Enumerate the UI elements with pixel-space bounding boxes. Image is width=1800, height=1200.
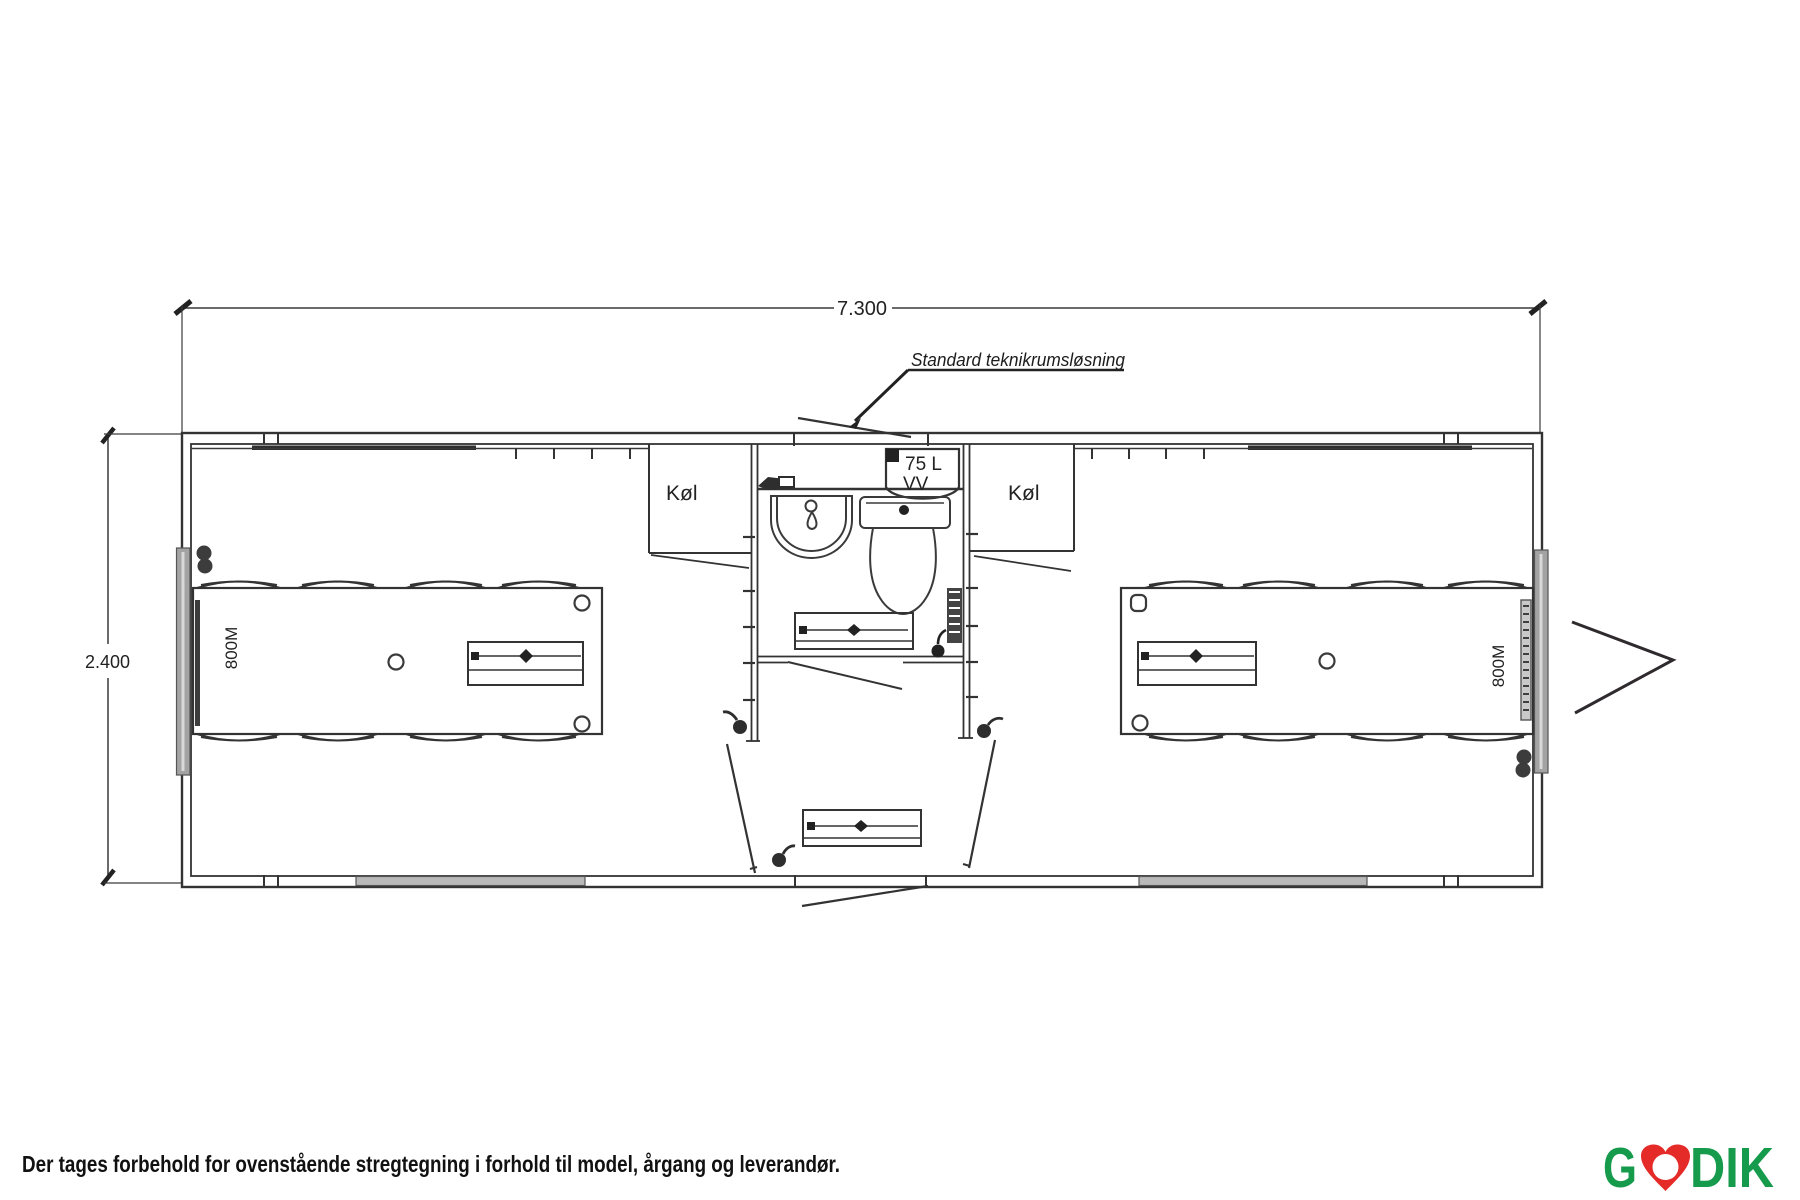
svg-text:DIK: DIK: [1690, 1136, 1774, 1200]
svg-text:Køl: Køl: [666, 482, 698, 505]
svg-text:2.400: 2.400: [85, 652, 130, 672]
svg-text:800M: 800M: [222, 627, 241, 670]
svg-text:75 L: 75 L: [905, 454, 942, 475]
svg-text:800M: 800M: [1489, 645, 1508, 688]
svg-text:G: G: [1603, 1136, 1637, 1200]
svg-text:VV: VV: [903, 474, 929, 495]
svg-text:7.300: 7.300: [837, 298, 887, 320]
svg-text:Der tages forbehold for ovenst: Der tages forbehold for ovenstående stre…: [22, 1151, 840, 1177]
svg-text:Standard teknikrumsløsning: Standard teknikrumsløsning: [911, 350, 1125, 370]
svg-text:Køl: Køl: [1008, 482, 1040, 505]
